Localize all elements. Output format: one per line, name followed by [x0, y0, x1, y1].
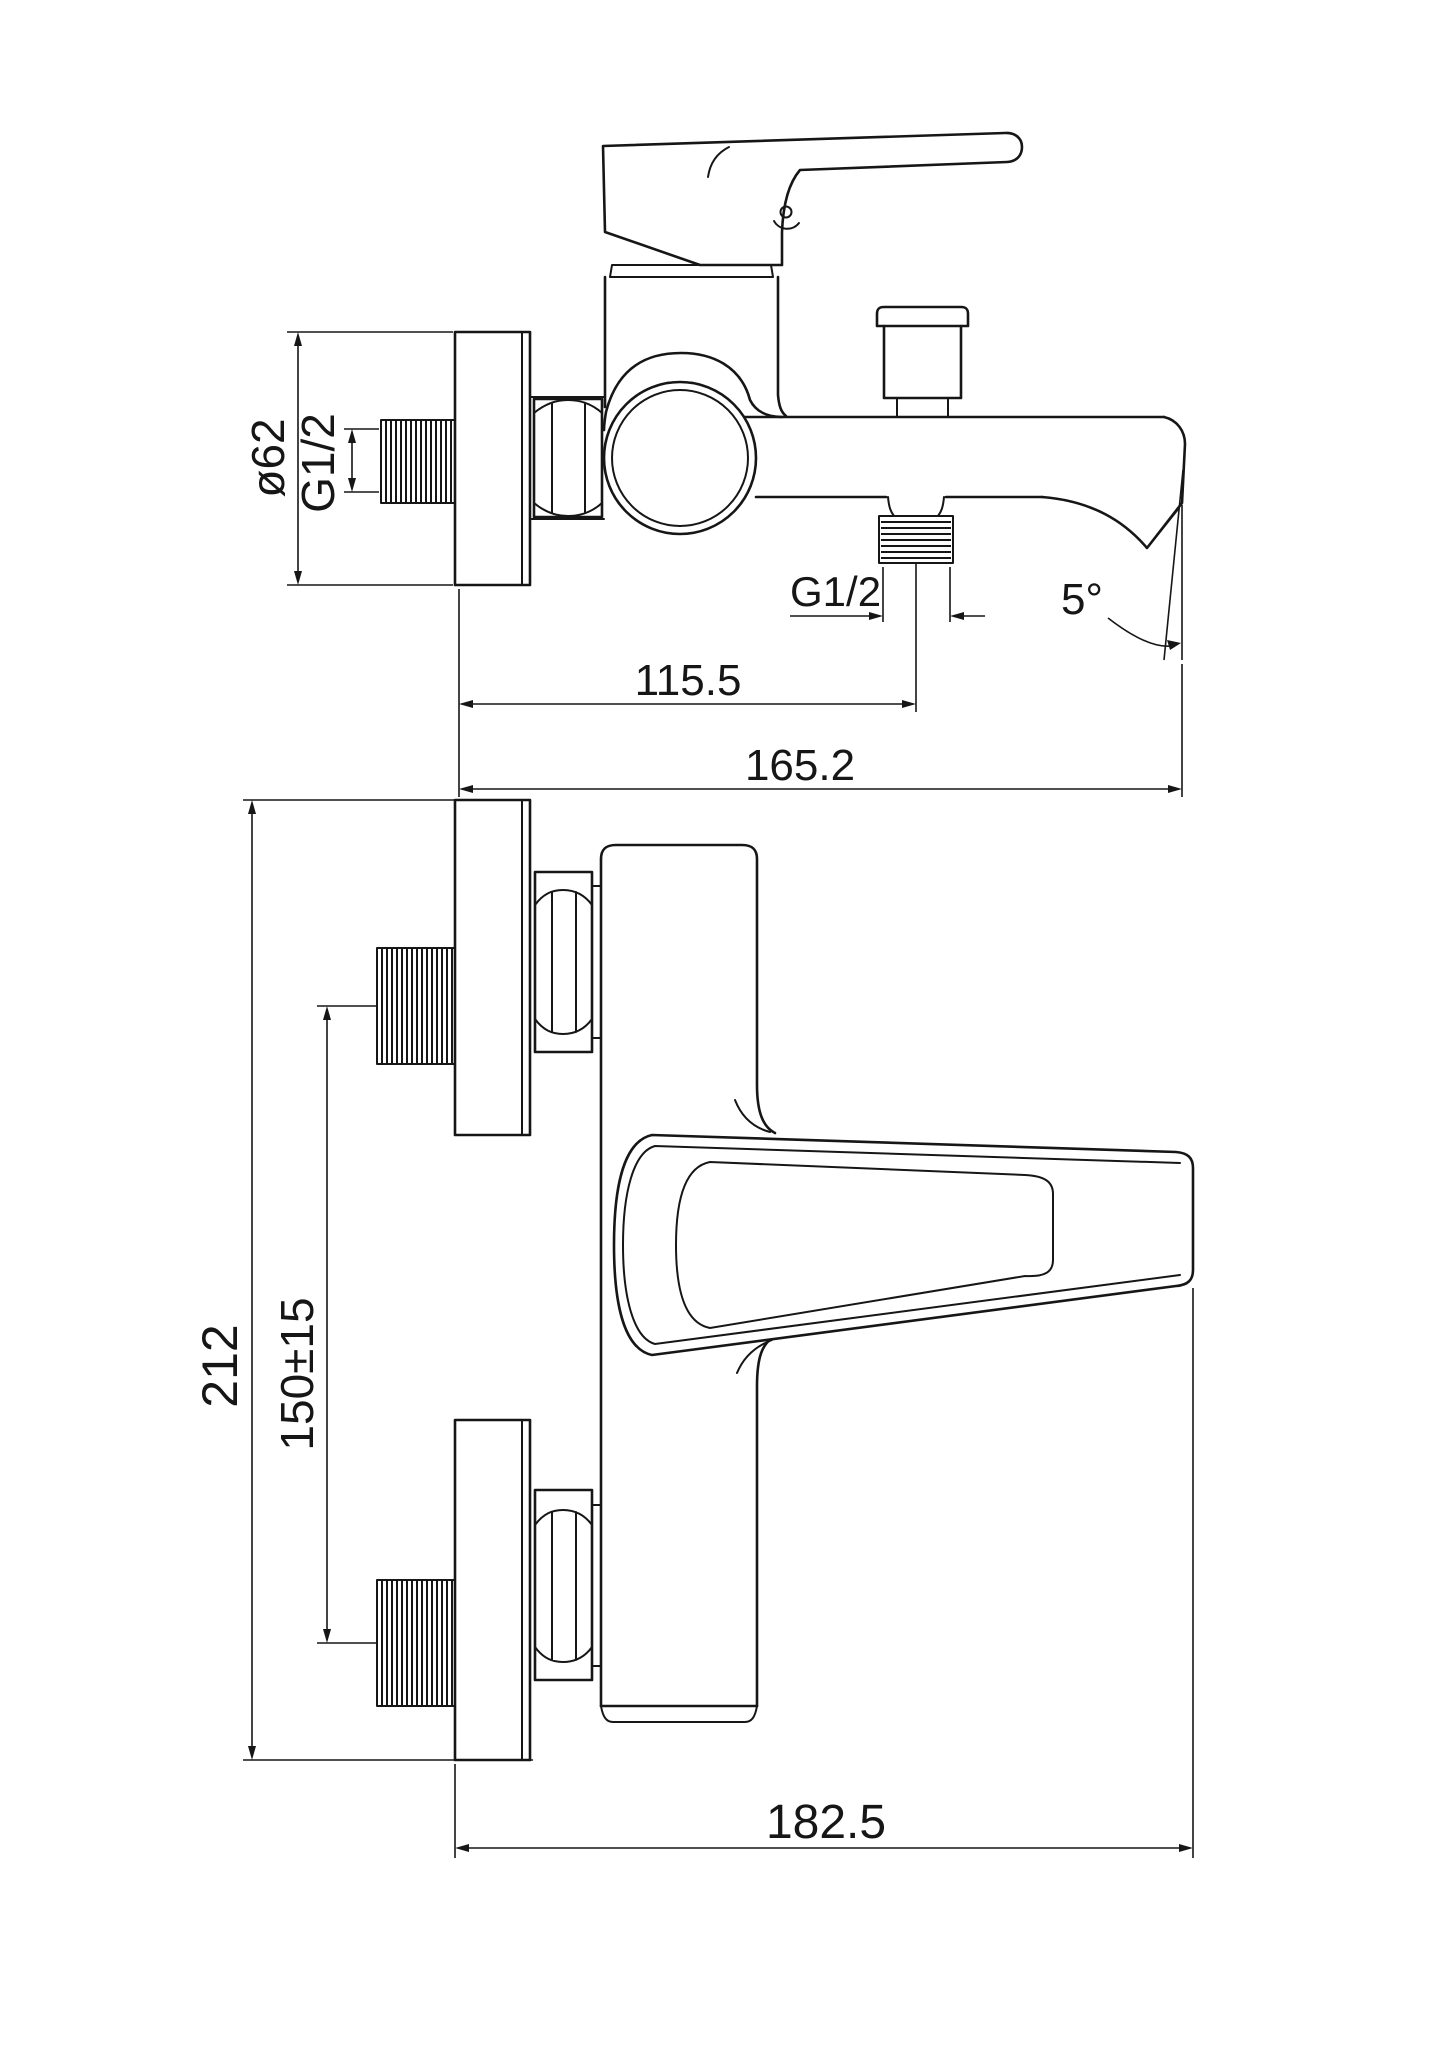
side-body-tube [744, 417, 1185, 548]
flange-diameter-label: ø62 [242, 418, 294, 497]
dim-spout-angle: 5° [1061, 470, 1183, 660]
drawing-sheet: ø62 G1/2 G1/2 115.5 165.2 [0, 0, 1445, 2045]
front-lower-thread [377, 1580, 455, 1706]
side-wall-thread [381, 420, 455, 503]
faucet-technical-drawing: ø62 G1/2 G1/2 115.5 165.2 [0, 0, 1445, 2045]
front-lower-hex-nut [535, 1490, 601, 1680]
dim-150-label: 150±15 [271, 1297, 323, 1450]
side-hex-nut [534, 399, 602, 517]
dim-115-5-label: 115.5 [635, 656, 742, 705]
front-handle [614, 1135, 1193, 1355]
front-upper-thread [377, 948, 455, 1064]
side-handle-collar [610, 265, 773, 277]
wall-thread-label: G1/2 [292, 413, 344, 513]
dim-wall-thread: G1/2 [292, 413, 379, 513]
front-upper-hex-nut [535, 872, 601, 1052]
side-union-nut [604, 382, 756, 534]
front-view: 212 150±15 182.5 [192, 800, 1193, 1858]
dim-165-2-label: 165.2 [745, 741, 855, 790]
dim-212-label: 212 [192, 1324, 248, 1407]
front-lower-flange [455, 1420, 530, 1760]
front-upper-flange [455, 800, 530, 1135]
outlet-thread-label: G1/2 [790, 568, 881, 615]
dim-182-5-label: 182.5 [766, 1796, 886, 1849]
side-view: ø62 G1/2 G1/2 115.5 165.2 [242, 133, 1185, 797]
spout-angle-label: 5° [1061, 575, 1103, 624]
side-wall-flange [455, 332, 530, 585]
side-shower-outlet [879, 497, 953, 563]
dim-outlet-thread: G1/2 [790, 567, 985, 622]
dim-165-2: 165.2 [459, 664, 1182, 797]
side-lever-handle [603, 133, 1022, 265]
side-diverter-knob [877, 307, 968, 416]
dim-150: 150±15 [271, 1006, 377, 1643]
